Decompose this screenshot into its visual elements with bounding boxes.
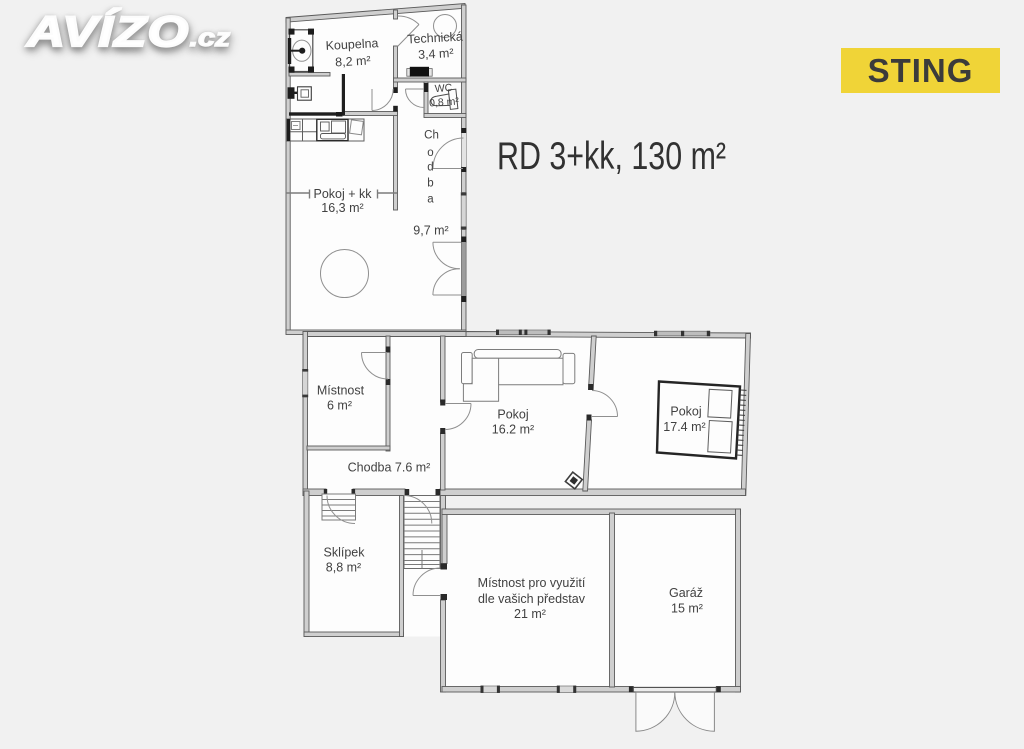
svg-text:Místnost pro využití: Místnost pro využití	[478, 576, 586, 590]
svg-text:15 m²: 15 m²	[671, 602, 703, 616]
svg-text:8,2 m²: 8,2 m²	[335, 54, 371, 70]
svg-text:21 m²: 21 m²	[514, 607, 546, 621]
svg-text:3,4 m²: 3,4 m²	[418, 46, 454, 62]
svg-text:Místnost: Místnost	[317, 384, 365, 398]
svg-text:Sklípek: Sklípek	[324, 546, 366, 560]
svg-text:d: d	[427, 162, 433, 174]
svg-text:17.4 m²: 17.4 m²	[663, 420, 705, 434]
svg-text:a: a	[427, 194, 434, 206]
svg-text:Koupelna: Koupelna	[325, 36, 379, 53]
svg-text:Pokoj + kk: Pokoj + kk	[313, 187, 372, 201]
svg-text:8,8 m²: 8,8 m²	[326, 561, 361, 575]
svg-text:Ch: Ch	[424, 130, 439, 142]
svg-text:Garáž: Garáž	[669, 586, 703, 600]
svg-text:Pokoj: Pokoj	[670, 405, 701, 419]
svg-text:o: o	[427, 147, 433, 159]
svg-text:RD 3+kk, 130 m²: RD 3+kk, 130 m²	[497, 134, 726, 177]
svg-text:0,8 m²: 0,8 m²	[429, 95, 460, 109]
svg-text:dle vašich představ: dle vašich představ	[478, 592, 586, 606]
svg-text:Pokoj: Pokoj	[497, 408, 528, 422]
svg-text:16.2 m²: 16.2 m²	[492, 423, 534, 437]
svg-text:6 m²: 6 m²	[327, 399, 352, 413]
svg-text:b: b	[427, 178, 433, 190]
svg-text:WC: WC	[434, 82, 453, 95]
svg-text:9,7 m²: 9,7 m²	[413, 224, 448, 238]
svg-text:Technická: Technická	[407, 30, 463, 47]
svg-text:16,3 m²: 16,3 m²	[321, 201, 363, 215]
svg-text:Chodba 7.6 m²: Chodba 7.6 m²	[348, 461, 431, 475]
